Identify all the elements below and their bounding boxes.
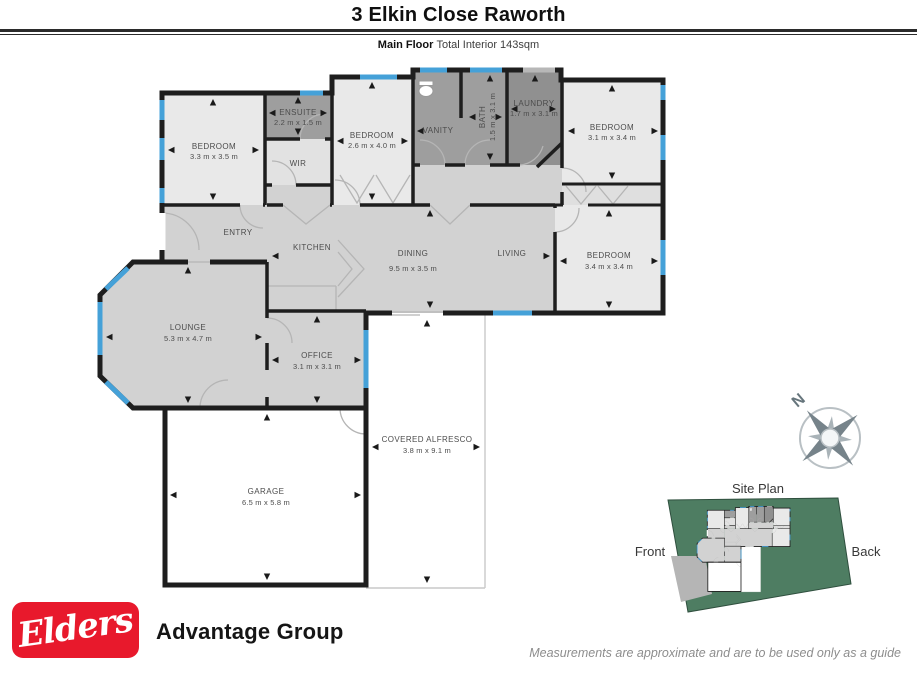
room-label: BATH bbox=[478, 106, 487, 128]
window bbox=[661, 135, 666, 160]
disclaimer-text: Measurements are approximate and are to … bbox=[529, 646, 901, 660]
room-label: BEDROOM bbox=[192, 142, 236, 151]
room-label: DINING bbox=[398, 249, 428, 258]
elders-logo-text: Elders bbox=[15, 600, 135, 661]
window bbox=[661, 240, 666, 275]
room-label: BEDROOM bbox=[350, 131, 394, 140]
room-bedroom-3 bbox=[562, 80, 663, 184]
room-dims: 3.1 m x 3.1 m bbox=[293, 362, 341, 371]
window bbox=[470, 68, 502, 73]
toilet-cistern bbox=[419, 81, 433, 86]
room-label: LAUNDRY bbox=[514, 99, 555, 108]
elders-logo: Elders bbox=[12, 602, 139, 658]
driveway bbox=[671, 556, 712, 602]
room-dims: 3.1 m x 3.4 m bbox=[588, 133, 636, 142]
room-label: LOUNGE bbox=[170, 323, 206, 332]
room-label: VANITY bbox=[423, 126, 454, 135]
room-dims: 2.2 m x 1.5 m bbox=[274, 118, 322, 127]
window bbox=[360, 75, 397, 80]
site-plan: Site Plan Front Back bbox=[635, 481, 881, 612]
room-dims: 6.5 m x 5.8 m bbox=[242, 498, 290, 507]
room-dims: 2.6 m x 4.0 m bbox=[348, 141, 396, 150]
compass-rose: N bbox=[766, 371, 881, 489]
floor-plan-canvas: BEDROOM 3.3 m x 3.5 m ENSUITE 2.2 m x 1.… bbox=[0, 0, 917, 675]
site-back-label: Back bbox=[852, 544, 881, 559]
room-label: LIVING bbox=[498, 249, 527, 258]
room-garage bbox=[165, 408, 366, 585]
room-dims: 1.5 m x 3.1 m bbox=[488, 93, 497, 141]
toilet-icon bbox=[419, 86, 433, 97]
site-front-label: Front bbox=[635, 544, 666, 559]
room-dims: 5.3 m x 4.7 m bbox=[164, 334, 212, 343]
window bbox=[420, 68, 447, 73]
window bbox=[661, 85, 666, 100]
room-dims: 1.7 m x 3.1 m bbox=[510, 109, 558, 118]
window bbox=[364, 330, 369, 388]
room-label: GARAGE bbox=[248, 487, 285, 496]
room-dims: 3.4 m x 3.4 m bbox=[585, 262, 633, 271]
room-label: WIR bbox=[290, 159, 307, 168]
room-label: BEDROOM bbox=[590, 123, 634, 132]
room-dims: 3.8 m x 9.1 m bbox=[403, 446, 451, 455]
window bbox=[300, 91, 323, 96]
wet-hallway bbox=[413, 165, 562, 205]
room-label: COVERED ALFRESCO bbox=[382, 435, 473, 444]
window bbox=[160, 100, 165, 120]
robe-strip bbox=[562, 184, 663, 205]
room-label: KITCHEN bbox=[293, 243, 331, 252]
floorplan-page: 3 Elkin Close Raworth Main Floor Total I… bbox=[0, 0, 917, 675]
window bbox=[160, 188, 165, 203]
window bbox=[98, 302, 103, 355]
compass-n-label: N bbox=[789, 391, 809, 411]
room-label: ENTRY bbox=[224, 228, 253, 237]
hallway bbox=[265, 185, 332, 205]
window bbox=[493, 311, 532, 316]
brand-suffix: Advantage Group bbox=[156, 619, 344, 645]
room-label: BEDROOM bbox=[587, 251, 631, 260]
window bbox=[160, 138, 165, 160]
screen-door bbox=[523, 68, 555, 73]
front-door-opening bbox=[159, 213, 166, 250]
room-dims: 3.3 m x 3.5 m bbox=[190, 152, 238, 161]
room-label: OFFICE bbox=[301, 351, 333, 360]
room-dims: 9.5 m x 3.5 m bbox=[389, 264, 437, 273]
site-plan-title: Site Plan bbox=[732, 481, 784, 496]
room-label: ENSUITE bbox=[279, 108, 316, 117]
